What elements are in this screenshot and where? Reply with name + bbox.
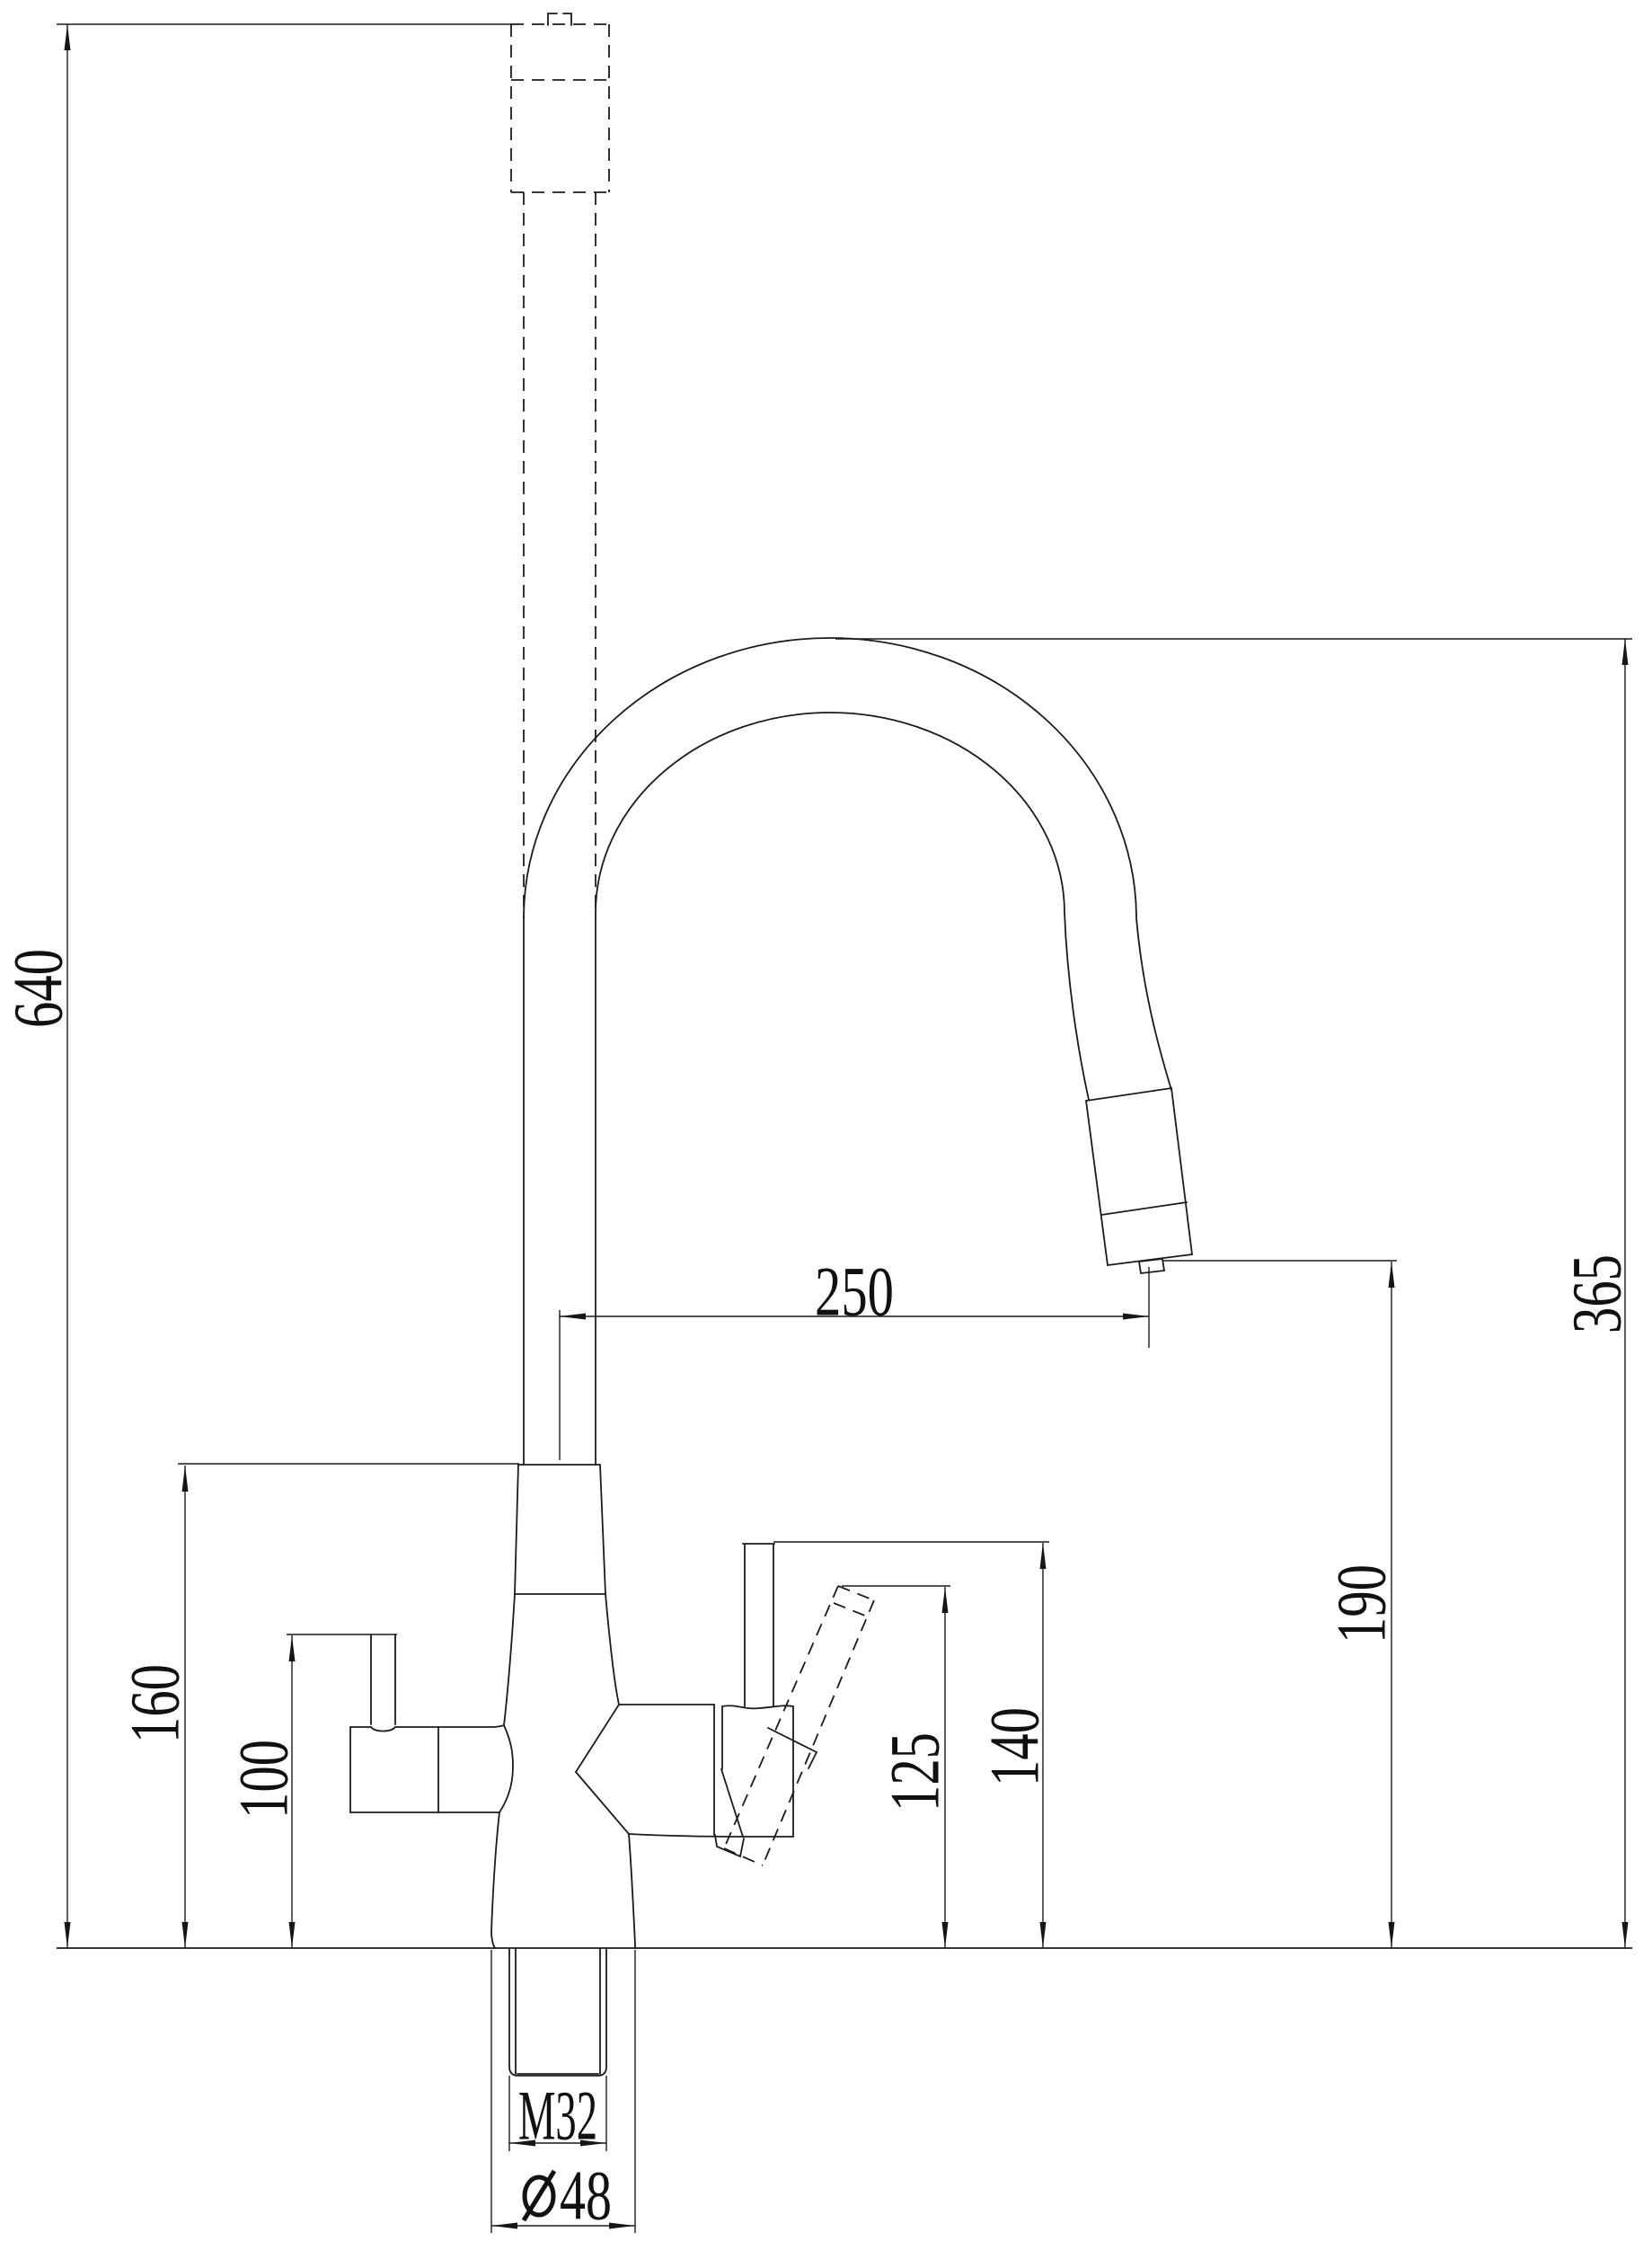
svg-text:125: 125 (876, 1732, 954, 1812)
svg-text:250: 250 (815, 1253, 894, 1331)
svg-text:190: 190 (1322, 1564, 1400, 1643)
svg-text:M32: M32 (518, 2077, 597, 2155)
svg-text:640: 640 (0, 949, 77, 1028)
svg-text:48: 48 (560, 2157, 612, 2235)
svg-text:140: 140 (976, 1707, 1054, 1786)
svg-text:100: 100 (225, 1740, 303, 1819)
svg-text:365: 365 (1558, 1254, 1636, 1333)
svg-text:160: 160 (116, 1664, 194, 1743)
